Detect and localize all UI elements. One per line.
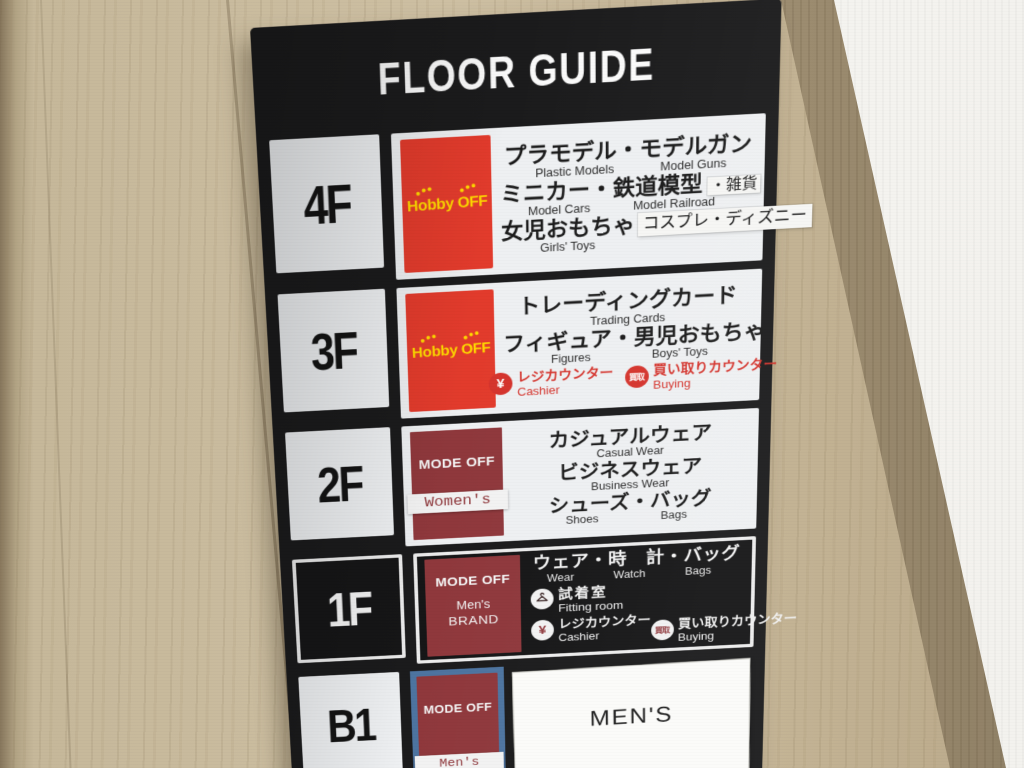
modeoff-logo-mens: MODE OFF Men's bbox=[416, 673, 500, 768]
service-en: Cashier bbox=[517, 381, 613, 399]
floor-row-2f: 2F MODE OFF Women's カジュアルウェア Casual Wear… bbox=[285, 408, 759, 552]
floor-content-b1: MODE OFF Men's MEN'S bbox=[410, 654, 753, 768]
mens-paper-sign: MEN'S bbox=[512, 658, 751, 768]
modeoff-mens-text: Men's bbox=[456, 597, 490, 612]
modeoff-womens-band: Women's bbox=[407, 489, 508, 514]
floor-label-4f: 4F bbox=[269, 134, 384, 273]
service-en: Cashier bbox=[558, 627, 650, 644]
sign-title-text: FLOOR GUIDE bbox=[377, 36, 655, 105]
floor-content-2f: MODE OFF Women's カジュアルウェア Casual Wear ビジ… bbox=[401, 408, 759, 547]
floor-content-1f: MODE OFF Men's BRAND ウェア・時 計・バッグ Wear Wa… bbox=[413, 536, 756, 664]
floor-row-3f: 3F Hobby OFF トレーディングカード Trading Cards フィ… bbox=[277, 269, 762, 425]
floor-label-text: 3F bbox=[310, 320, 358, 382]
category-list-4f: プラモデル・モデルガン Plastic Models Model Guns ミニ… bbox=[500, 131, 757, 258]
floor-label-text: 2F bbox=[316, 454, 363, 514]
hobbyoff-logo: Hobby OFF bbox=[405, 289, 496, 412]
category-en-label: Bags bbox=[661, 508, 688, 522]
floor-content-4f: Hobby OFF プラモデル・モデルガン Plastic Models Mod… bbox=[391, 113, 766, 280]
category-en-label: Wear bbox=[547, 571, 574, 585]
category-en-label: Watch bbox=[613, 567, 645, 581]
modeoff-logo-text: MODE OFF bbox=[435, 572, 510, 590]
service-text: レジカウンター Cashier bbox=[558, 614, 650, 644]
hobbyoff-logo-text: Hobby OFF bbox=[411, 340, 490, 362]
floor-label-text: 4F bbox=[302, 172, 352, 237]
modeoff-logo-mens-brand: MODE OFF Men's BRAND bbox=[424, 555, 521, 657]
modeoff-logo-frame: MODE OFF Men's bbox=[410, 667, 506, 768]
hanger-icon bbox=[531, 588, 554, 610]
cashier-service: ¥ レジカウンター Cashier bbox=[489, 367, 614, 401]
floor-label-text: 1F bbox=[326, 580, 372, 637]
service-line: ¥ レジカウンター Cashier 買取 買い取りカウンター Buying bbox=[531, 610, 743, 652]
floor-row-1f: 1F MODE OFF Men's BRAND ウェア・時 計・バッグ Wear… bbox=[292, 536, 756, 670]
floor-label-1f: 1F bbox=[292, 554, 406, 663]
buying-service: 買取 買い取りカウンター Buying bbox=[625, 358, 778, 393]
modeoff-logo-text: MODE OFF bbox=[418, 454, 495, 473]
category-en-label: Boys' Toys bbox=[652, 345, 708, 361]
hobbyoff-logo: Hobby OFF bbox=[400, 135, 493, 273]
mens-paper-text: MEN'S bbox=[590, 702, 674, 731]
kaitori-icon: 買取 bbox=[625, 365, 649, 388]
hobbyoff-logo-text: Hobby OFF bbox=[406, 193, 487, 216]
kaitori-icon: 買取 bbox=[651, 619, 674, 641]
fitting-room-service: 試着室 Fitting room bbox=[531, 584, 624, 616]
service-text: レジカウンター Cashier bbox=[517, 367, 613, 399]
category-list-2f: カジュアルウェア Casual Wear ビジネスウェア Business We… bbox=[510, 420, 750, 530]
photo-scene: FLOOR GUIDE 4F Hobby OFF プラモデル・モデルガン Pla… bbox=[0, 0, 1024, 768]
service-text: 試着室 Fitting room bbox=[558, 584, 623, 615]
service-en: Fitting room bbox=[558, 599, 623, 615]
yen-icon: ¥ bbox=[489, 372, 513, 395]
modeoff-logo-text: MODE OFF bbox=[423, 700, 492, 716]
modeoff-logo-womens: MODE OFF Women's bbox=[410, 427, 504, 540]
modeoff-mens-band: Men's bbox=[415, 752, 504, 768]
floor-row-4f: 4F Hobby OFF プラモデル・モデルガン Plastic Models … bbox=[269, 113, 766, 286]
category-en-label: Bags bbox=[685, 564, 711, 578]
category-list-1f: ウェア・時 計・バッグ Wear Watch Bags bbox=[528, 544, 745, 651]
floor-guide-sign: FLOOR GUIDE 4F Hobby OFF プラモデル・モデルガン Pla… bbox=[250, 0, 782, 768]
floor-label-b1: B1 bbox=[298, 672, 404, 768]
floor-label-text: B1 bbox=[326, 698, 376, 753]
category-en-label: Shoes bbox=[566, 513, 599, 527]
floor-label-2f: 2F bbox=[285, 427, 394, 540]
category-en-label: Girls' Toys bbox=[540, 239, 595, 256]
floor-row-b1: B1 MODE OFF Men's MEN'S bbox=[298, 654, 753, 768]
service-text: 買い取りカウンター Buying bbox=[653, 358, 777, 392]
yen-icon: ¥ bbox=[531, 619, 554, 641]
floor-label-3f: 3F bbox=[277, 289, 389, 413]
floor-content-3f: Hobby OFF トレーディングカード Trading Cards フィギュア… bbox=[396, 269, 762, 419]
modeoff-womens-text: Women's bbox=[424, 492, 491, 512]
category-en-label: Figures bbox=[551, 351, 591, 366]
modeoff-mens-text: Men's bbox=[439, 755, 479, 768]
modeoff-brand-text: BRAND bbox=[448, 612, 499, 628]
category-list-3f: トレーディングカード Trading Cards フィギュア・男児おもちゃ Fi… bbox=[502, 283, 753, 400]
cashier-service: ¥ レジカウンター Cashier bbox=[531, 614, 651, 645]
